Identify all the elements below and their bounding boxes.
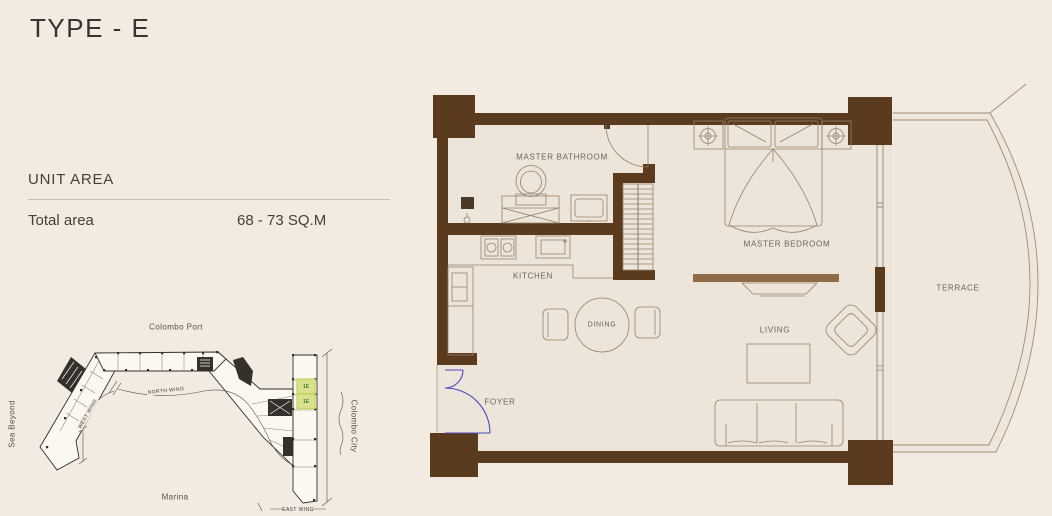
plan-graphics xyxy=(0,0,1052,516)
page-title: TYPE - E xyxy=(30,13,150,44)
terrace-floor xyxy=(893,113,1038,452)
unit-cell-2-label[interactable]: 1E xyxy=(303,399,309,405)
unit-floor xyxy=(437,113,892,463)
total-area-value: 68 - 73 SQ.M xyxy=(237,212,326,229)
room-label-dining: DINING xyxy=(588,322,617,329)
site-label-marina: Marina xyxy=(162,493,189,502)
wing-label-east: EAST WING xyxy=(281,507,315,513)
site-label-sea-beyond: Sea Beyond xyxy=(8,400,17,448)
room-label-foyer: FOYER xyxy=(484,398,515,407)
floorplan-page: TYPE - E UNIT AREA Total area 68 - 73 SQ… xyxy=(0,0,1052,516)
total-area-label: Total area xyxy=(28,212,94,229)
room-label-master-bathroom: MASTER BATHROOM xyxy=(516,153,608,162)
shower-control xyxy=(461,197,474,209)
tv-console xyxy=(693,274,839,282)
site-label-colombo-city: Colombo City xyxy=(350,400,359,453)
room-label-living: LIVING xyxy=(760,326,790,335)
unit-cell-1-label[interactable]: 1E xyxy=(303,384,309,390)
room-label-kitchen: KITCHEN xyxy=(513,272,553,281)
room-label-terrace: TERRACE xyxy=(936,284,979,293)
unit-area-divider xyxy=(28,199,390,200)
unit-area-heading: UNIT AREA xyxy=(28,171,114,188)
site-label-colombo-port: Colombo Port xyxy=(149,323,203,332)
room-label-master-bedroom: MASTER BEDROOM xyxy=(744,240,831,249)
site-map-drawing xyxy=(40,349,343,511)
